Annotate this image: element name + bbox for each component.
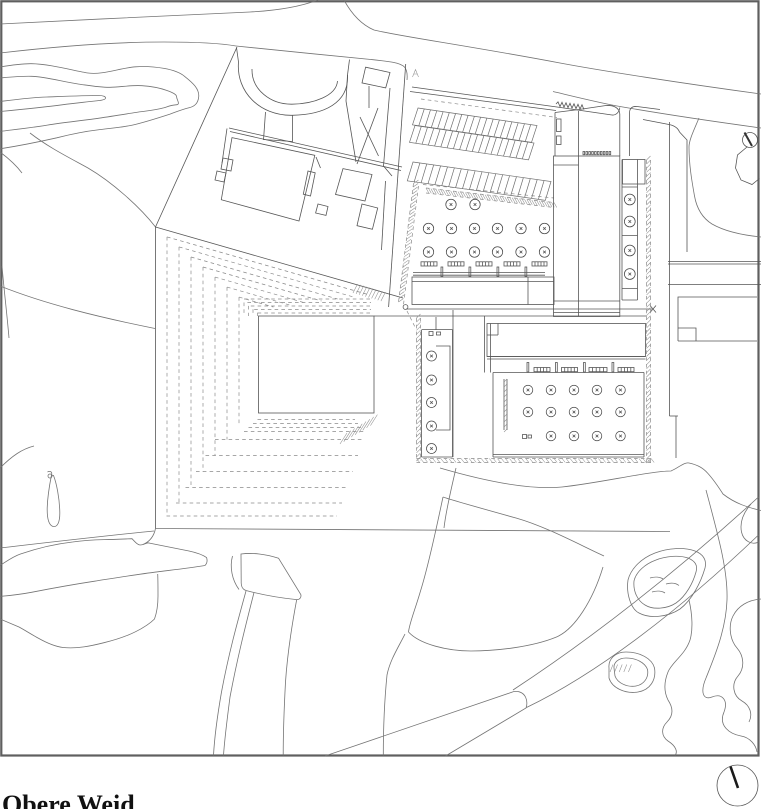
svg-text:Obere Weid: Obere Weid	[2, 790, 135, 809]
